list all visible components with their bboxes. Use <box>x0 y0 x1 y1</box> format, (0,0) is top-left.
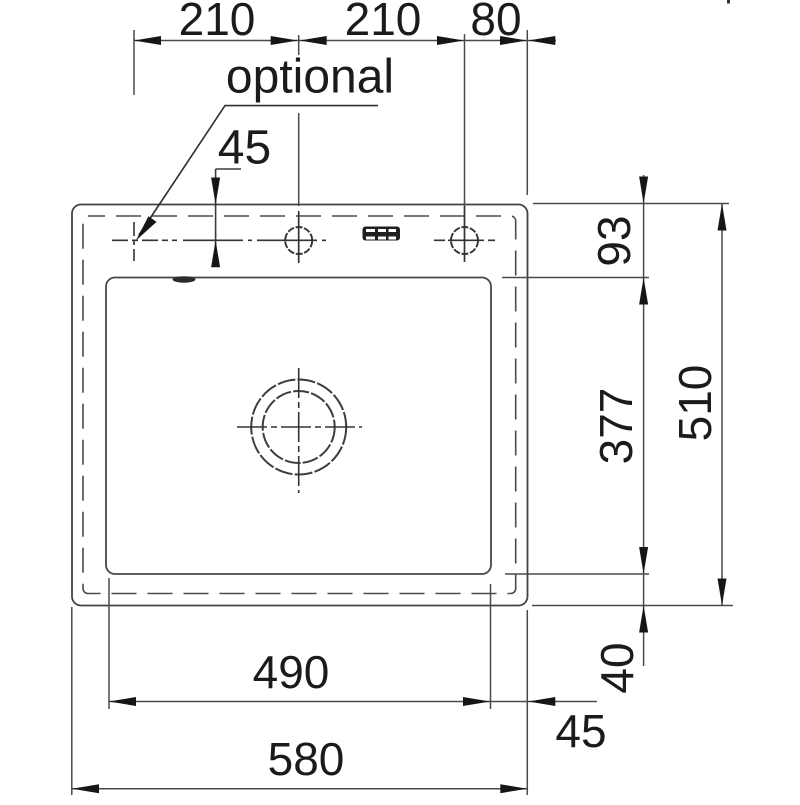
svg-text:210: 210 <box>345 0 422 45</box>
svg-text:80: 80 <box>470 0 521 45</box>
svg-text:580: 580 <box>268 733 345 785</box>
svg-text:40: 40 <box>591 642 643 693</box>
svg-text:45: 45 <box>555 705 606 757</box>
svg-text:93: 93 <box>588 215 640 266</box>
svg-text:377: 377 <box>590 388 642 465</box>
svg-text:optional: optional <box>226 51 394 104</box>
svg-text:210: 210 <box>179 0 256 45</box>
svg-text:510: 510 <box>669 365 721 442</box>
svg-text:45: 45 <box>218 122 271 175</box>
svg-text:490: 490 <box>253 646 330 698</box>
